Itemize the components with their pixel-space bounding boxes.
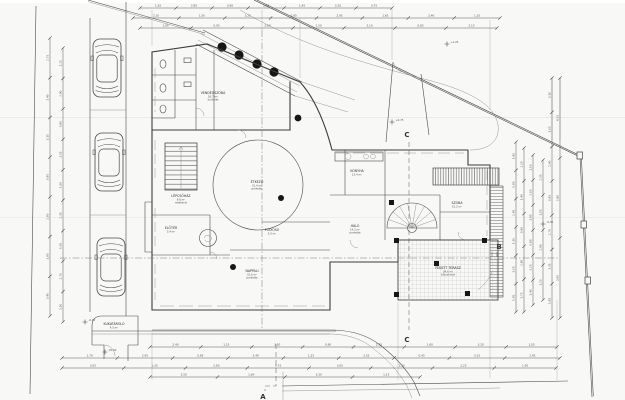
kitchen-counter — [335, 152, 383, 161]
dimension-label: 1,45 — [299, 4, 305, 8]
dimension-label: 1,05 — [528, 343, 534, 347]
column-marker — [278, 195, 284, 201]
dimension-label: 2,80 — [556, 195, 560, 201]
elevation-label: -0,45 — [89, 318, 96, 322]
dimension-label: 1,65 — [548, 126, 552, 132]
column-marker — [465, 291, 470, 296]
garden-path-curve — [240, 10, 498, 150]
door-swing-arc — [458, 232, 466, 240]
elevation-label: ±0,00 — [109, 348, 117, 352]
dimension-label: 0,85 — [512, 181, 516, 187]
dimension-label: 3,55 — [59, 151, 63, 157]
dimension-label: 2,90 — [539, 244, 543, 250]
dimension-label: 0,80 — [529, 239, 533, 245]
dimension-label: 1,40 — [46, 94, 50, 100]
dimension-label: 1,70 — [87, 354, 93, 358]
dimension-label: 2,45 — [512, 210, 516, 216]
dimension-label: 2,35 — [539, 174, 543, 180]
door-swing-arc — [238, 130, 246, 138]
dimension-label: 0,95 — [419, 354, 425, 358]
elevation-label: +1,25 — [451, 40, 459, 44]
room-label: ELŐTÉR — [165, 225, 178, 230]
dimension-label: 2,50 — [181, 373, 187, 377]
dimension-label: 2,10 — [153, 14, 159, 18]
dimension-label: 2,85 — [191, 4, 197, 8]
section-marker-a: A — [260, 393, 266, 400]
dimension-label: 3,15 — [474, 354, 480, 358]
dimension-label: 3,05 — [90, 364, 96, 368]
dimension-label: 2,95 — [336, 14, 342, 18]
dimension-label: 1,60 — [59, 182, 63, 188]
dimension-label: 1,90 — [512, 153, 516, 159]
dimension-label: 3,65 — [337, 364, 343, 368]
grid-lines — [60, 30, 560, 391]
dimension-label: 1,10 — [529, 164, 533, 170]
dimension-label: 1,35 — [548, 263, 552, 269]
door-swing-arc — [196, 108, 204, 116]
car-icon — [93, 133, 125, 191]
dimension-label: 2,60 — [46, 213, 50, 219]
dimension-label: 0,95 — [548, 195, 552, 201]
dimension-label: 2,80 — [213, 364, 219, 368]
dimension-label: 1,15 — [383, 373, 389, 377]
dimension-label: 1,50 — [199, 14, 205, 18]
dimension-label: 1,85 — [46, 253, 50, 259]
dimension-label: 3,60 — [556, 275, 560, 281]
dimension-label: 1,35 — [152, 364, 158, 368]
toilet-fixture — [160, 60, 166, 68]
dimension-label: 1,80 — [248, 373, 254, 377]
room-label: SZOBA — [451, 201, 463, 205]
dimension-label: 2,60 — [264, 24, 270, 28]
stove-fixture — [200, 230, 217, 247]
dimension-label: 3,60 — [263, 4, 269, 8]
dimension-label: 1,05 — [59, 243, 63, 249]
room-label: LÉPCSŐHÁZ — [171, 193, 191, 198]
dimension-label: 1,40 — [529, 289, 533, 295]
dimension-label: 1,50 — [59, 303, 63, 309]
svg-text:15,2 m²: 15,2 m² — [452, 204, 462, 208]
storage-room — [92, 316, 336, 361]
room-label: ÉTKEZŐ — [251, 179, 264, 184]
dimension-label: 1,55 — [539, 209, 543, 215]
column-marker — [230, 264, 236, 270]
dimension-label: 2,20 — [520, 161, 524, 167]
dimension-label: 1,20 — [155, 4, 161, 8]
svg-text:kőburkolat: kőburkolat — [441, 272, 455, 276]
dimension-label: 0,85 — [417, 24, 423, 28]
room-label: HÁLÓ — [351, 223, 360, 228]
svg-text:3,4 m²: 3,4 m² — [167, 229, 176, 233]
dimension-label: 0,90 — [325, 343, 331, 347]
room-label: KONYHA — [350, 169, 364, 173]
dimension-label: 2,70 — [59, 273, 63, 279]
dimension-label: 2,55 — [363, 354, 369, 358]
dimension-label: 1,75 — [520, 292, 524, 298]
dimension-label: 2,85 — [520, 259, 524, 265]
section-marker-b: B — [496, 243, 501, 251]
dimension-label: 3,30 — [316, 373, 322, 377]
dimension-label: 1,30 — [512, 238, 516, 244]
room-label: KUKATÁROLÓ — [103, 321, 125, 326]
dimension-label: 1,25 — [308, 354, 314, 358]
plan-dots — [230, 115, 394, 270]
dimension-label: 2,65 — [529, 189, 533, 195]
dimension-label: 2,40 — [428, 14, 434, 18]
dimension-label: 0,95 — [213, 24, 219, 28]
street-edge-line — [30, 6, 36, 394]
column-marker — [269, 67, 278, 76]
dimension-label: 0,80 — [59, 121, 63, 127]
dimension-label: 1,60 — [427, 343, 433, 347]
dimension-label: 3,25 — [529, 264, 533, 270]
dimension-label: 0,75 — [371, 4, 377, 8]
toilet-fixture — [160, 105, 166, 113]
column-marker — [295, 115, 302, 122]
sink-fixture — [184, 58, 191, 63]
entry-steps — [433, 168, 499, 185]
dimension-label: 3,50 — [274, 343, 280, 347]
dimension-label: 2,75 — [548, 229, 552, 235]
svg-text:4,5 m²: 4,5 m² — [110, 325, 119, 329]
column-marker — [482, 238, 487, 243]
dimension-label: 1,90 — [522, 364, 528, 368]
dimension-label: 3,05 — [512, 266, 516, 272]
elevation-label: -0,30 — [547, 220, 554, 224]
dimension-label: 2,75 — [46, 55, 50, 61]
door-swing-arc — [350, 240, 358, 248]
toilet-fixture — [160, 84, 166, 92]
dimension-label: 1,10 — [474, 14, 480, 18]
elevation-label: +0,75 — [396, 118, 404, 122]
spot-elevations: -0,45 ±0,00 +1,25 -0,30 +0,75 — [83, 40, 554, 355]
dimension-label: 1,15 — [223, 343, 229, 347]
dimension-label: 2,90 — [59, 90, 63, 96]
dimension-label: 2,95 — [142, 354, 148, 358]
sink-fixture — [184, 82, 191, 87]
column-marker — [394, 238, 399, 243]
svg-text:5,5 m²: 5,5 m² — [268, 231, 277, 235]
dimension-label: 1,85 — [162, 24, 168, 28]
dimension-label: 0,80 — [290, 14, 296, 18]
column-marker — [389, 200, 394, 205]
dimension-label: 3,45 — [46, 293, 50, 299]
dimension-label: 2,20 — [335, 4, 341, 8]
scan-artifacts — [0, 0, 625, 218]
svg-text:burkolat: burkolat — [208, 97, 219, 101]
room-label: NAPPALI — [245, 269, 258, 273]
dimension-label: 2,15 — [468, 24, 474, 28]
dimension-label: 2,40 — [172, 343, 178, 347]
svg-text:mettlachi: mettlachi — [175, 200, 188, 204]
dimension-label: 2,75 — [376, 343, 382, 347]
section-marker-c-top: C — [404, 131, 409, 139]
room-label: FEDETT TERASZ — [435, 266, 461, 270]
dimension-label: 0,95 — [46, 174, 50, 180]
dimension-label: 2,35 — [59, 212, 63, 218]
svg-text:parketta: parketta — [252, 186, 263, 190]
dimension-label: 1,45 — [520, 194, 524, 200]
dimension-label: 0,75 — [275, 364, 281, 368]
dimension-label: 1,30 — [315, 24, 321, 28]
sink-fixture — [345, 154, 351, 160]
dimension-label: 1,95 — [529, 214, 533, 220]
dimension-label: 3,10 — [548, 92, 552, 98]
dimension-label: 1,50 — [399, 364, 405, 368]
dimension-label: 3,40 — [253, 354, 259, 358]
dimension-label: 0,90 — [227, 4, 233, 8]
dimension-label: 3,15 — [46, 134, 50, 140]
dimension-label: 1,65 — [382, 14, 388, 18]
dimension-label: 1,65 — [512, 295, 516, 301]
dimension-label: 1,45 — [529, 354, 535, 358]
column-marker — [394, 292, 399, 297]
dimension-label: 0,90 — [520, 227, 524, 233]
dimension-label: 3,10 — [366, 24, 372, 28]
dimension-label: 3,25 — [245, 14, 251, 18]
dimension-label: 1,20 — [539, 279, 543, 285]
room-label: FOLYOSÓ — [265, 227, 280, 232]
property-fence — [88, 0, 593, 397]
dimension-label: 4,25 — [556, 115, 560, 121]
dimension-label: 1,25 — [59, 60, 63, 66]
svg-text:parketta: parketta — [350, 230, 361, 234]
dimension-label: 2,25 — [460, 364, 466, 368]
room-label: VENDÉGSZOBA — [201, 90, 226, 95]
site-plan-drawing: 1,202,850,903,601,452,200,752,101,503,25… — [0, 0, 625, 400]
section-marker-c-bottom: C — [404, 336, 409, 344]
svg-text:12,4 m²: 12,4 m² — [352, 172, 362, 176]
dimension-label: 0,85 — [197, 354, 203, 358]
svg-text:parketta: parketta — [247, 275, 258, 279]
entry-canopy — [196, 30, 355, 112]
street-and-parking — [30, 2, 127, 394]
car-icon — [91, 39, 123, 97]
dimension-label: 2,40 — [548, 160, 552, 166]
site-plan-canvas: 1,202,850,903,601,452,200,752,101,503,25… — [0, 0, 625, 400]
dimension-label: 3,20 — [478, 343, 484, 347]
car-icon — [95, 238, 127, 296]
dimension-label: 1,85 — [548, 298, 552, 304]
